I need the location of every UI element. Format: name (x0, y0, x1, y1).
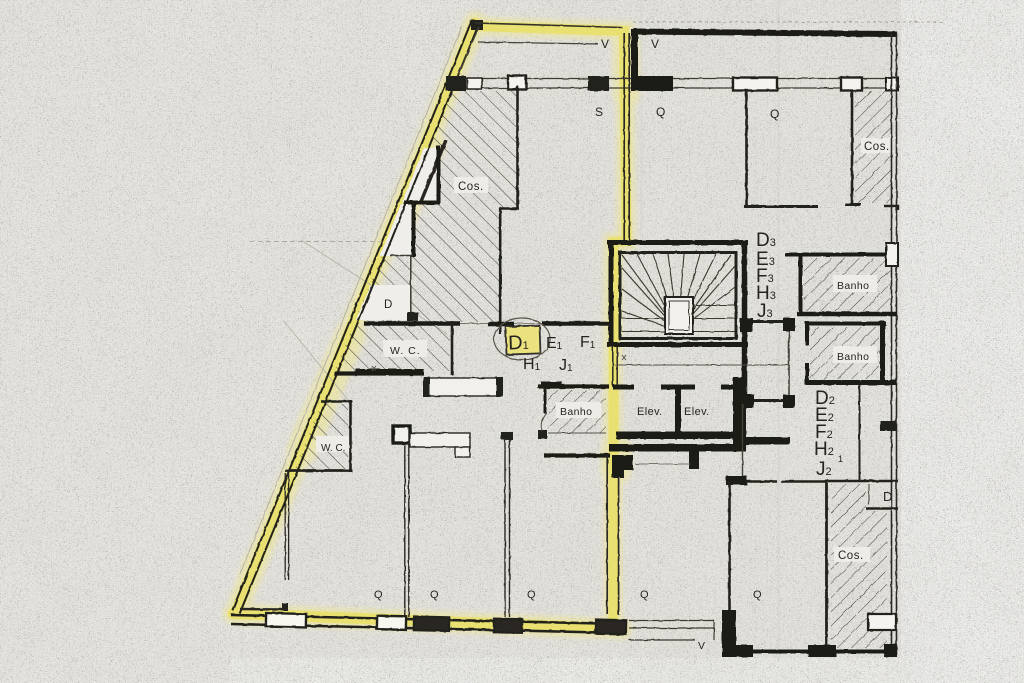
svg-text:Banho: Banho (837, 351, 869, 363)
svg-text:Q: Q (753, 589, 762, 601)
svg-text:S: S (595, 105, 603, 119)
svg-text:Banho: Banho (560, 406, 592, 418)
svg-text:Q: Q (640, 589, 649, 601)
svg-text:Cos.: Cos. (458, 181, 484, 193)
svg-text:V: V (601, 37, 609, 51)
svg-text:W. C.: W. C. (321, 443, 345, 454)
svg-text:D: D (883, 489, 892, 504)
svg-text:Q: Q (430, 589, 439, 601)
svg-text:V: V (651, 37, 659, 51)
svg-text:Q: Q (656, 105, 665, 119)
svg-text:V: V (698, 640, 705, 652)
svg-text:Cos.: Cos. (864, 141, 890, 153)
svg-text:W. C.: W. C. (390, 345, 421, 357)
svg-text:Elev.: Elev. (684, 406, 710, 418)
svg-text:Q: Q (527, 589, 536, 601)
svg-text:1: 1 (838, 454, 843, 464)
svg-text:Q: Q (770, 107, 779, 121)
svg-text:Cos.: Cos. (838, 550, 864, 562)
svg-text:Banho: Banho (837, 280, 869, 292)
svg-text:Elev.: Elev. (637, 406, 663, 418)
svg-text:D: D (384, 299, 392, 311)
svg-text:Q: Q (374, 589, 383, 601)
